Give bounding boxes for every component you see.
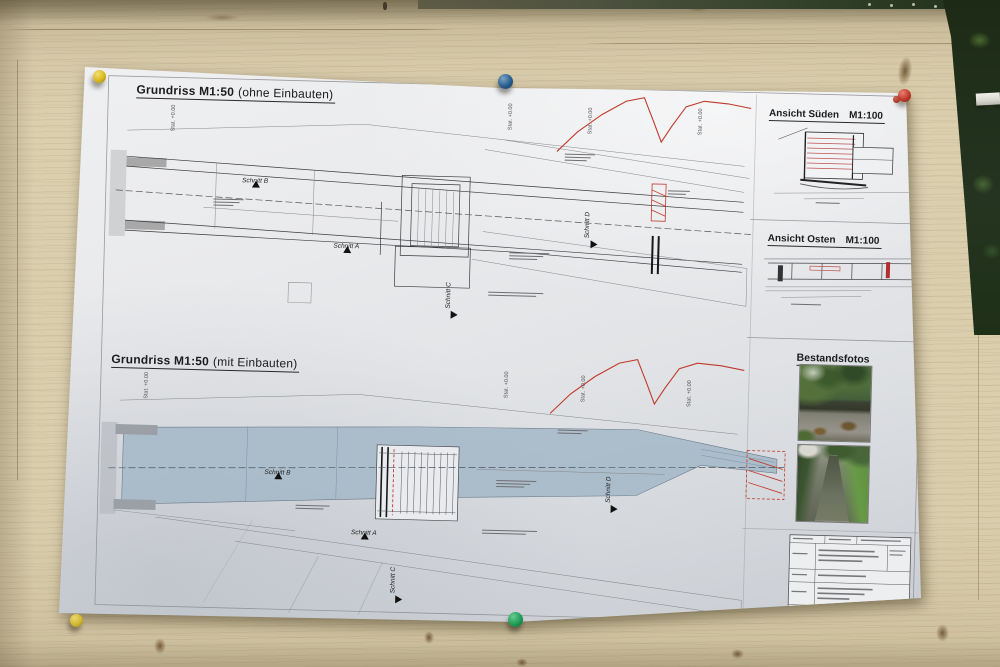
photo-of-plan-on-wood-wall: Grundriss M1:50(ohne Einbauten) Grundris… bbox=[0, 0, 1000, 667]
section-label-a-bottom: Schnitt A bbox=[351, 529, 377, 537]
station-label: Stat. +0.00 bbox=[686, 380, 693, 407]
pushpin-yellow-top-left bbox=[93, 70, 106, 83]
view-south-title-text: Ansicht Süden bbox=[769, 108, 839, 121]
pushpin-green-bottom-center bbox=[508, 612, 523, 627]
section-marker-triangles-top bbox=[249, 180, 599, 322]
view-east-linework bbox=[763, 255, 917, 308]
illegible-annotation-text bbox=[791, 304, 821, 306]
section-label-c-top: Schnitt C bbox=[445, 282, 453, 309]
station-label: Stat. +0.00 bbox=[503, 371, 510, 398]
view-east-scale: M1:100 bbox=[845, 235, 879, 247]
view-east-title-text: Ansicht Osten bbox=[768, 233, 836, 246]
view-south-scale: M1:100 bbox=[849, 110, 883, 122]
red-markup-top bbox=[555, 95, 751, 223]
station-label: Stat. +0.00 bbox=[580, 375, 587, 402]
pushpin-blue-top-center bbox=[498, 74, 513, 89]
plan-bottom-linework bbox=[97, 346, 787, 618]
section-label-a-top: Schnitt A bbox=[333, 243, 359, 251]
plan-bottom-title-suffix: (mit Einbauten) bbox=[213, 354, 298, 370]
site-photo-1 bbox=[797, 364, 872, 443]
station-label: Stat. +0.00 bbox=[697, 108, 704, 135]
section-label-b-top: Schnitt B bbox=[242, 177, 268, 185]
station-label: Stat. +0.00 bbox=[507, 103, 514, 130]
title-block bbox=[788, 535, 911, 623]
plan-sheet: Grundriss M1:50(ohne Einbauten) Grundris… bbox=[0, 0, 1000, 667]
site-photo-2 bbox=[795, 444, 870, 524]
channel-water bbox=[815, 454, 851, 522]
plan-top-linework bbox=[107, 84, 755, 327]
plan-top-title-text: Grundriss M1:50 bbox=[136, 82, 234, 99]
section-label-d-bottom: Schnitt D bbox=[605, 476, 613, 503]
section-label-c-bottom: Schnitt C bbox=[389, 567, 397, 594]
view-south-linework bbox=[774, 127, 911, 206]
section-label-b-bottom: Schnitt B bbox=[264, 469, 290, 477]
sheet-content: Grundriss M1:50(ohne Einbauten) Grundris… bbox=[0, 0, 1000, 667]
pushpin-yellow-bottom-left bbox=[70, 614, 83, 627]
section-label-d-top: Schnitt D bbox=[584, 212, 592, 239]
plan-bottom-title-text: Grundriss M1:50 bbox=[111, 352, 209, 369]
drawing-linework bbox=[0, 0, 1000, 667]
illegible-scale-text bbox=[790, 618, 883, 622]
illegible-annotation-text bbox=[816, 202, 840, 204]
pushpin-red-stem bbox=[893, 96, 900, 103]
station-label: Stat. +0.00 bbox=[587, 107, 594, 134]
plan-sheet-wrap: Grundriss M1:50(ohne Einbauten) Grundris… bbox=[0, 0, 1000, 667]
station-label: Stat. +0.00 bbox=[143, 372, 150, 399]
station-label: Stat. +0.00 bbox=[170, 105, 177, 132]
plan-top-title-suffix: (ohne Einbauten) bbox=[238, 85, 334, 101]
